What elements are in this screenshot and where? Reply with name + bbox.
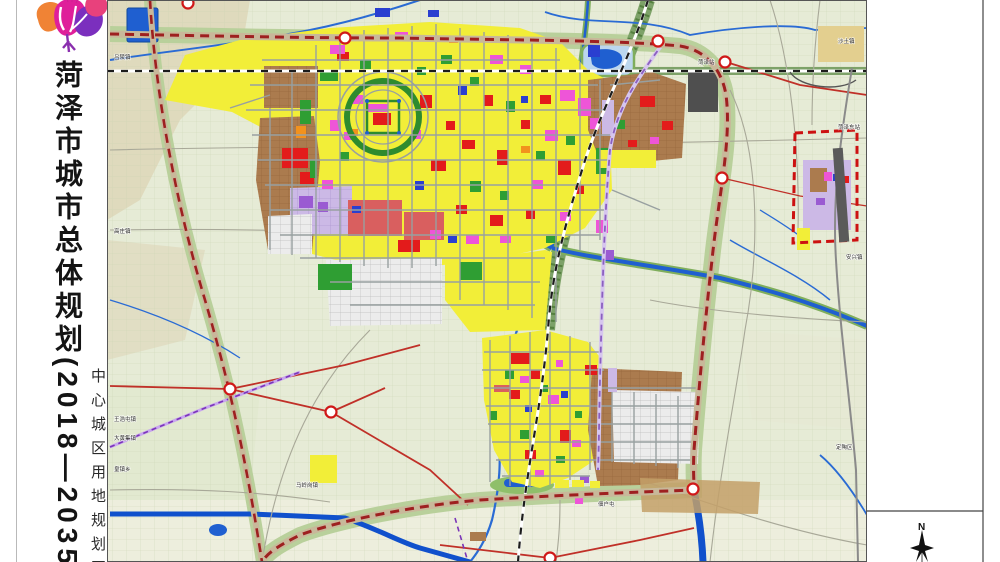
landuse-parcel [511,353,530,364]
landuse-parcel [520,376,529,383]
landuse-parcel [816,198,825,205]
landuse-parcel [398,240,420,252]
landuse-parcel [640,96,655,107]
map-town-label: 吕陵镇 [114,53,131,61]
landuse-parcel [575,411,582,418]
landuse-parcel [446,121,455,130]
landuse-parcel [520,430,529,439]
map-town-label: 菏泽站 [698,58,715,66]
plan-title: 菏泽市城市总体规划(2018—2035年) [47,60,87,562]
landuse-parcel [824,172,832,181]
landuse-parcel [628,140,637,147]
landuse-parcel [330,45,345,54]
landuse-parcel [470,181,481,192]
landuse-parcel [797,228,810,250]
landuse-parcel [448,236,457,243]
peony-logo-icon [24,0,110,60]
landuse-parcel [470,532,486,541]
landuse-parcel [460,262,482,280]
landuse-parcel [360,60,371,69]
map-town-label: 沙土镇 [838,37,855,45]
sheet-left-rule [16,0,17,562]
map-town-label: 皇镇乡 [114,465,131,473]
landuse-parcel [490,411,497,420]
landuse-parcel [662,121,673,130]
landuse-parcel [500,236,511,243]
landuse-parcel [556,360,563,367]
landuse-parcel [299,196,313,208]
landuse-parcel [566,136,575,145]
landuse-parcel [650,137,659,144]
landuse-parcel [318,264,352,290]
landuse-parcel [572,440,581,447]
landuse-parcel [536,151,545,160]
landuse-parcel [688,72,718,112]
landuse-parcel [540,95,551,104]
map-town-label: 高庄镇 [114,227,131,235]
compass-n-label: N [918,522,925,533]
landuse-map: 吕陵镇高庄镇王浩屯镇大黄集镇皇镇乡马岭岗镇菏泽站菏泽东站沙土镇安兴镇定陶区佃户屯… [107,0,1000,562]
plan-subtitle: 中心城区用地规划图 [87,368,108,562]
map-town-label: 定陶区 [836,443,853,451]
landuse-parcel [466,235,479,244]
landuse-parcel [490,215,503,226]
landuse-parcel [572,480,584,487]
landuse-parcel [521,146,530,153]
landuse-parcel [484,95,493,106]
map-town-label: 菏泽东站 [838,123,861,131]
landuse-parcel [375,8,390,17]
landuse-parcel [296,126,306,138]
plan-sheet: 菏泽市城市总体规划(2018—2035年) 中心城区用地规划图 [0,0,1000,562]
landuse-parcel [368,104,388,112]
landuse-parcel [521,96,528,103]
landuse-parcel [300,100,311,124]
landuse-parcel [497,150,508,165]
landuse-parcel [310,455,337,483]
landuse-parcel [462,140,475,149]
landuse-parcel [558,160,571,175]
landuse-parcel [282,148,308,168]
landuse-parcel [555,480,569,488]
landuse-parcel [590,481,600,488]
landuse-parcel [431,160,446,171]
map-town-label: 安兴镇 [846,253,863,261]
landuse-parcel [348,200,402,236]
landuse-parcel [428,10,439,17]
landuse-parcel [561,391,568,398]
landuse-parcel [526,210,535,219]
landuse-parcel [521,120,530,129]
map-town-label: 马岭岗镇 [296,481,319,489]
map-town-label: 王浩屯镇 [114,415,137,423]
map-town-label: 佃户屯 [598,500,615,508]
landuse-parcel [531,370,540,379]
landuse-parcel [560,90,575,101]
map-town-label: 大黄集镇 [114,434,137,442]
